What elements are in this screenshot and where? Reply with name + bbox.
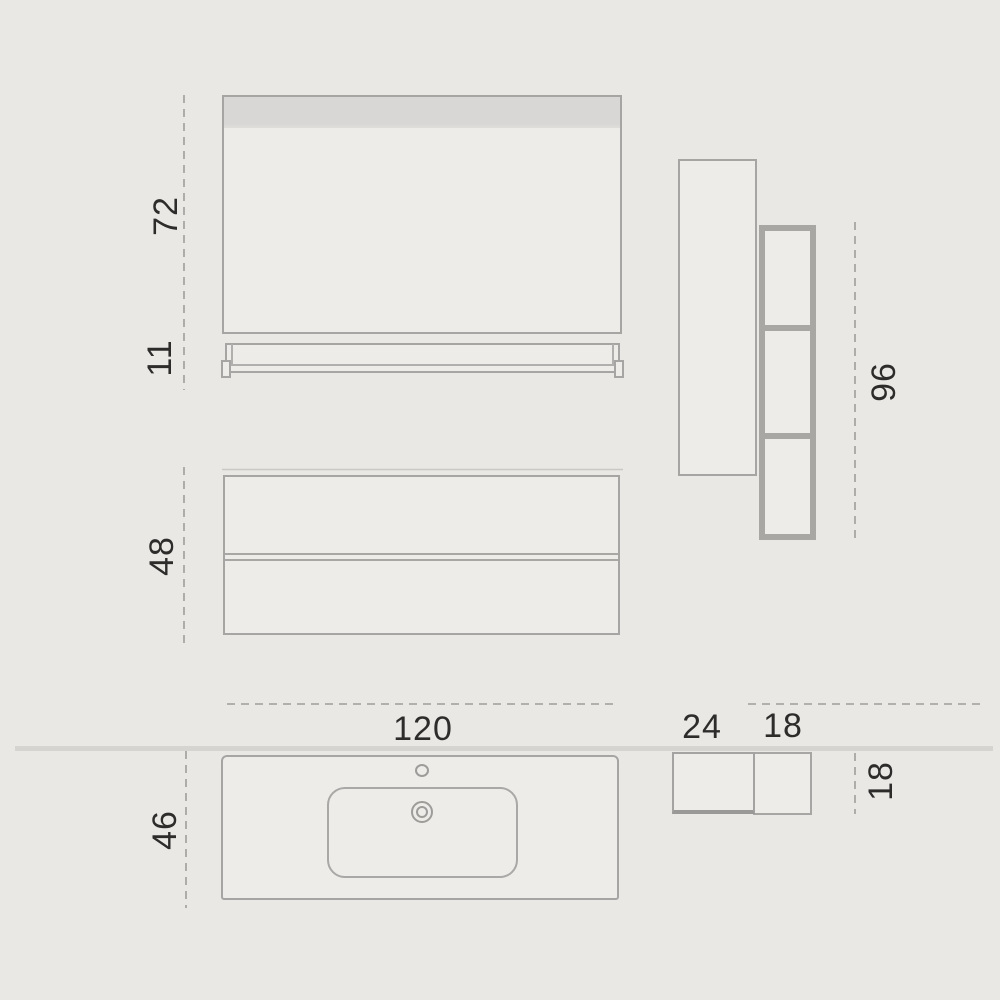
dim-label-top-width: 120 (393, 712, 453, 746)
column-shelf-divider (765, 433, 810, 439)
dim-label-side-unit-a-width: 24 (682, 710, 722, 744)
wall-line (15, 746, 993, 751)
shelf-end-cap-right (614, 360, 624, 378)
faucet-hole-inner (416, 806, 428, 818)
dim-label-side-unit-depth: 18 (864, 761, 898, 801)
technical-drawing-canvas: 72 11 96 48 120 24 18 46 18 (0, 0, 1000, 1000)
dim-label-top-depth: 46 (148, 810, 182, 850)
dim-label-side-unit-b-width: 18 (763, 709, 803, 743)
overflow-hole (415, 764, 429, 777)
side-unit-a-plan (672, 752, 755, 814)
dim-label-vanity-height: 48 (145, 536, 179, 576)
drawer-divider (225, 553, 618, 561)
dim-label-mirror-height: 72 (149, 196, 183, 236)
tall-cabinet-side (678, 159, 757, 476)
dim-label-shelf-height: 11 (143, 339, 177, 376)
shelf-inner-wall (231, 344, 614, 366)
open-shelf-column (759, 225, 816, 540)
shelf-end-cap-left (221, 360, 231, 378)
vanity-front (223, 475, 620, 635)
mirror-top-band (224, 97, 620, 128)
side-unit-b-plan (753, 752, 812, 815)
column-shelf-divider (765, 325, 810, 331)
dim-label-column-height: 96 (867, 362, 901, 402)
mirror-front (222, 95, 622, 334)
